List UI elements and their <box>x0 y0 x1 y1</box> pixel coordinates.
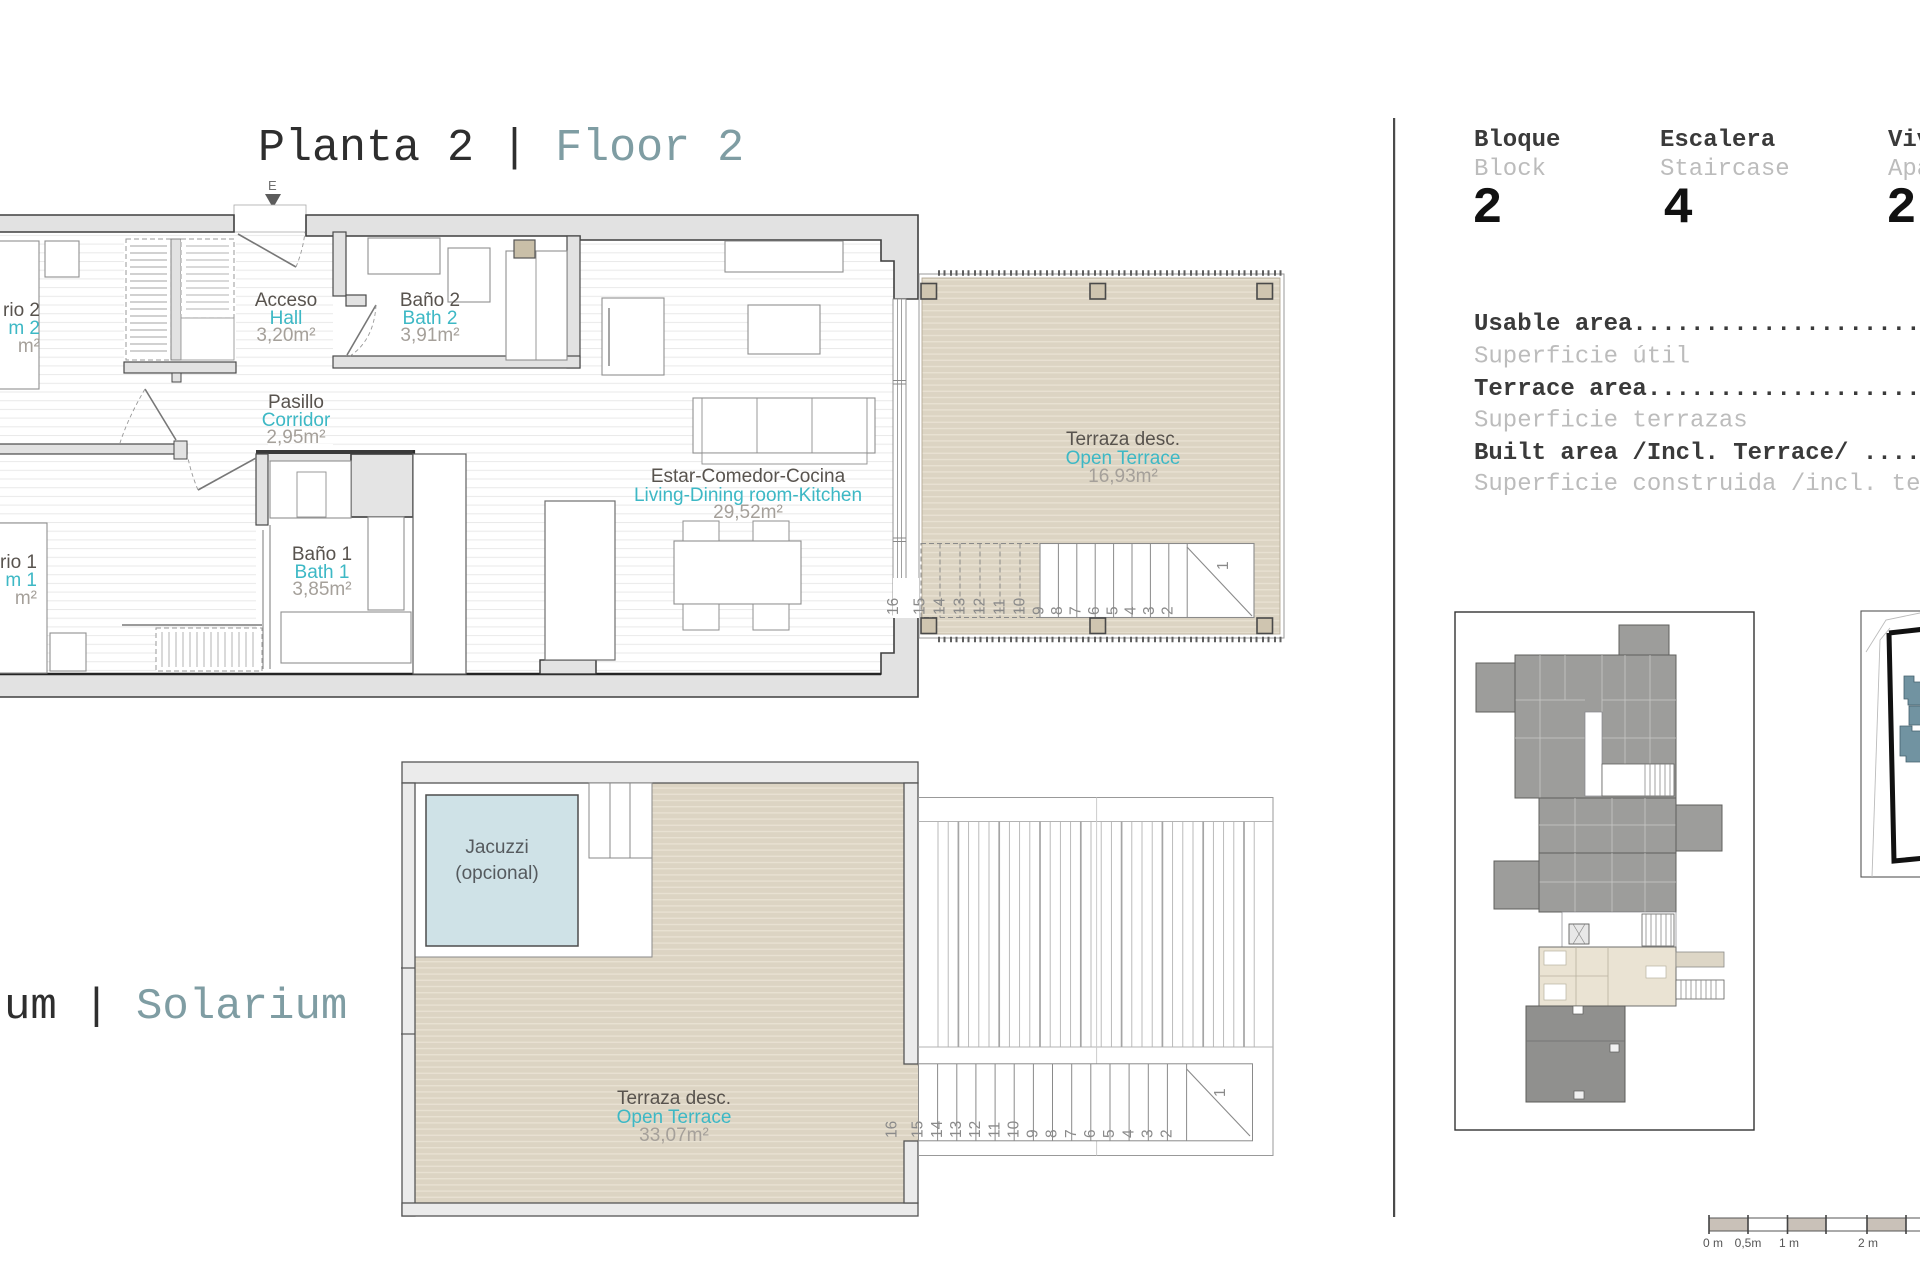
svg-text:11: 11 <box>992 599 1009 615</box>
svg-text:4: 4 <box>1120 1129 1137 1138</box>
svg-text:14: 14 <box>932 597 949 615</box>
svg-text:3: 3 <box>1140 1129 1157 1138</box>
svg-text:Bloque: Bloque <box>1474 127 1560 154</box>
svg-text:Superficie terrazas: Superficie terrazas <box>1474 408 1748 435</box>
svg-text:3: 3 <box>1141 606 1158 615</box>
svg-text:8: 8 <box>1049 606 1066 615</box>
svg-text:Usable area...................: Usable area.......................... <box>1474 311 1920 338</box>
svg-text:3,85m²: 3,85m² <box>292 579 351 600</box>
svg-text:11: 11 <box>986 1122 1003 1138</box>
svg-text:Vivienda: Vivienda <box>1888 127 1920 154</box>
svg-text:Block: Block <box>1474 156 1546 183</box>
svg-text:2,95m²: 2,95m² <box>266 427 325 448</box>
svg-text:1 m: 1 m <box>1779 1236 1799 1250</box>
svg-text:Built area /Incl. Terrace/ ...: Built area /Incl. Terrace/ .......... <box>1474 440 1920 467</box>
svg-text:8: 8 <box>1044 1129 1061 1138</box>
svg-text:213: 213 <box>1886 181 1920 238</box>
svg-text:10: 10 <box>1012 597 1029 615</box>
svg-text:m²: m² <box>15 588 37 609</box>
svg-text:6: 6 <box>1086 606 1103 615</box>
svg-text:16: 16 <box>885 598 902 615</box>
svg-text:2: 2 <box>1160 606 1177 615</box>
svg-text:(opcional): (opcional) <box>455 863 538 884</box>
svg-text:Terrace area..................: Terrace area......................... <box>1474 376 1920 403</box>
svg-text:13: 13 <box>948 1121 965 1138</box>
svg-text:2: 2 <box>1472 181 1503 238</box>
svg-text:15: 15 <box>912 598 929 615</box>
svg-text:16: 16 <box>884 1121 901 1138</box>
svg-text:Planta 2 | Floor 2: Planta 2 | Floor 2 <box>258 123 744 174</box>
svg-text:Apartment: Apartment <box>1888 156 1920 183</box>
svg-text:0,5m: 0,5m <box>1735 1236 1762 1250</box>
svg-text:2 m: 2 m <box>1858 1236 1878 1250</box>
svg-text:0 m: 0 m <box>1703 1236 1723 1250</box>
svg-text:4: 4 <box>1663 181 1694 238</box>
svg-text:7: 7 <box>1063 1129 1080 1138</box>
svg-text:12: 12 <box>972 598 989 615</box>
svg-text:3,20m²: 3,20m² <box>256 325 315 346</box>
svg-text:Estar-Comedor-Cocina: Estar-Comedor-Cocina <box>651 466 846 487</box>
svg-text:Superficie útil: Superficie útil <box>1474 344 1690 371</box>
svg-text:Jacuzzi: Jacuzzi <box>465 837 528 858</box>
svg-text:m²: m² <box>18 336 40 357</box>
svg-text:12: 12 <box>967 1121 984 1138</box>
svg-text:Terraza desc.: Terraza desc. <box>1066 429 1180 450</box>
svg-text:2: 2 <box>1159 1129 1176 1138</box>
svg-text:7: 7 <box>1068 606 1085 615</box>
svg-text:13: 13 <box>952 598 969 615</box>
svg-text:Terraza desc.: Terraza desc. <box>617 1088 731 1109</box>
svg-text:14: 14 <box>929 1120 946 1138</box>
svg-text:3,91m²: 3,91m² <box>400 325 459 346</box>
svg-text:6: 6 <box>1082 1129 1099 1138</box>
svg-text:16,93m²: 16,93m² <box>1088 466 1158 487</box>
svg-text:9: 9 <box>1025 1129 1042 1138</box>
svg-text:1: 1 <box>1212 1088 1229 1097</box>
svg-text:E: E <box>268 178 277 193</box>
svg-text:10: 10 <box>1005 1120 1022 1138</box>
svg-text:5: 5 <box>1104 606 1121 615</box>
svg-text:15: 15 <box>910 1121 927 1138</box>
svg-text:5: 5 <box>1101 1129 1118 1138</box>
svg-text:4: 4 <box>1123 606 1140 615</box>
svg-text:um | Solarium: um | Solarium <box>4 982 347 1032</box>
svg-text:1: 1 <box>1215 561 1232 570</box>
svg-text:Superficie construida /incl. t: Superficie construida /incl. terraza <box>1474 471 1920 498</box>
svg-text:Escalera: Escalera <box>1660 127 1775 154</box>
svg-text:29,52m²: 29,52m² <box>713 502 783 523</box>
svg-text:33,07m²: 33,07m² <box>639 1125 709 1146</box>
svg-text:Staircase: Staircase <box>1660 156 1790 183</box>
svg-text:9: 9 <box>1031 606 1048 615</box>
